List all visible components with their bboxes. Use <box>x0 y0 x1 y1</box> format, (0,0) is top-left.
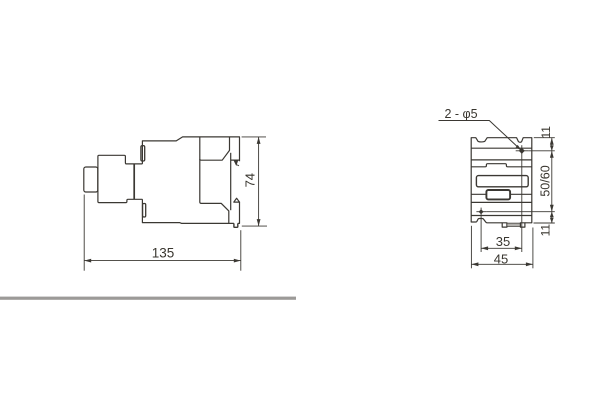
svg-text:35: 35 <box>496 234 510 249</box>
svg-text:50/60: 50/60 <box>538 165 552 196</box>
svg-text:11: 11 <box>539 224 553 237</box>
svg-text:2 - φ5: 2 - φ5 <box>444 107 477 121</box>
svg-text:11: 11 <box>539 126 553 139</box>
svg-text:45: 45 <box>494 252 508 267</box>
svg-text:74: 74 <box>243 173 258 187</box>
svg-text:135: 135 <box>152 245 175 260</box>
